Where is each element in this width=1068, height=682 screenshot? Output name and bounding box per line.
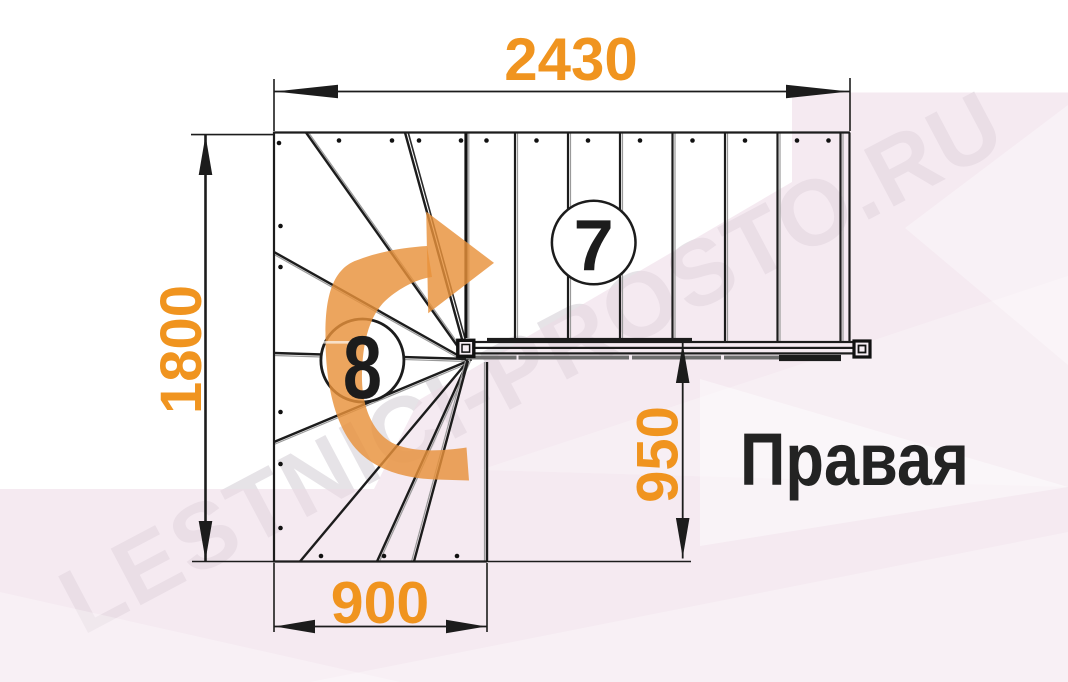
svg-text:Правая: Правая <box>740 418 969 501</box>
svg-text:8: 8 <box>343 317 382 417</box>
svg-text:900: 900 <box>331 570 429 636</box>
svg-text:7: 7 <box>574 206 614 286</box>
svg-text:2430: 2430 <box>504 26 637 93</box>
svg-text:950: 950 <box>626 406 691 503</box>
svg-text:1800: 1800 <box>149 285 214 414</box>
